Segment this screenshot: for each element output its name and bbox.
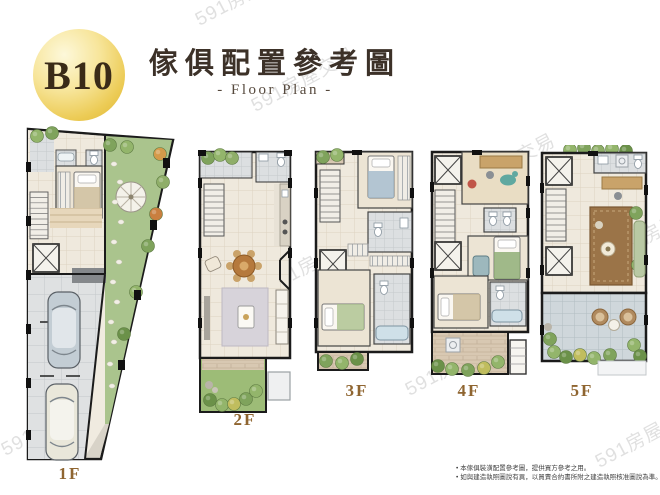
- floor-plan-1f: [10, 124, 175, 466]
- stairs-icon: [435, 190, 455, 242]
- floor-cushion-icon: [595, 221, 603, 229]
- unit-badge: B10: [33, 29, 125, 121]
- wardrobe-icon: [58, 172, 70, 212]
- floor-label-1f: 1F: [48, 464, 92, 484]
- page-title: 傢俱配置參考圖: [120, 40, 430, 82]
- bathtub-icon: [376, 326, 408, 340]
- stairs-icon: [546, 189, 566, 241]
- stairs-icon: [204, 184, 224, 236]
- closet: [348, 244, 368, 256]
- floor-label-5f: 5F: [560, 381, 604, 401]
- note-line: 本傢俱裝潢配置參考圖，提供買方參考之用。: [460, 465, 590, 472]
- bed-icon: [438, 294, 480, 320]
- tv-cabinet-icon: [204, 296, 210, 340]
- elevator-icon: [435, 242, 461, 270]
- wicker-chair-icon: [592, 309, 608, 325]
- page-subtitle: - Floor Plan -: [120, 82, 430, 99]
- toilet-icon: [374, 223, 382, 237]
- side-table-icon: [609, 320, 620, 331]
- sofa-icon: [276, 290, 288, 344]
- elevator-icon: [546, 157, 572, 185]
- wicker-chair-icon: [620, 309, 636, 325]
- annex-box: [268, 372, 290, 400]
- toilet-icon: [503, 212, 511, 226]
- floor-label-3f: 3F: [335, 381, 379, 401]
- bed-icon: [494, 237, 520, 279]
- sink-icon: [400, 218, 408, 228]
- toilet-icon: [380, 281, 388, 295]
- watermark: 591房屋交易: [590, 396, 660, 474]
- outdoor-stair: [510, 340, 526, 374]
- washer-icon: [446, 338, 460, 352]
- floor-label-4f: 4F: [447, 381, 491, 401]
- car-icon: [48, 292, 80, 368]
- kitchen-sink-icon: [282, 190, 288, 197]
- floor-plan-3f: [312, 148, 416, 378]
- patio-umbrella-icon: [116, 182, 146, 212]
- bullet-icon: •: [456, 474, 458, 481]
- chaise-icon: [634, 221, 645, 277]
- bed-icon: [74, 172, 100, 214]
- bathtub-icon: [492, 310, 522, 322]
- floor-label-2f: 2F: [223, 410, 267, 430]
- floor-plan-4f: [428, 148, 532, 380]
- elevator-icon: [33, 244, 59, 272]
- toilet-icon: [634, 155, 642, 169]
- terrace-extension: [598, 361, 646, 375]
- floor-plan-5f: [538, 145, 650, 380]
- toilet-icon: [277, 153, 285, 167]
- toilet-icon: [90, 151, 98, 165]
- floor-plan-2f: [196, 148, 296, 418]
- pouf-icon: [468, 180, 477, 189]
- note-line: 如與建造執照圖說有異，以買賣合約書所附之建造執照核准圖說為準。: [460, 474, 660, 481]
- stairs-icon: [30, 192, 48, 239]
- car-icon: [46, 384, 78, 460]
- desk-chair-icon: [614, 192, 622, 200]
- bed-icon: [322, 304, 364, 330]
- bathtub-icon: [58, 153, 74, 161]
- sink-icon: [598, 156, 608, 164]
- closet: [370, 256, 410, 266]
- toilet-icon: [496, 286, 504, 300]
- hall-wood-floor: [50, 208, 102, 228]
- watermark: 591房屋交易: [190, 0, 304, 31]
- washer-icon: [616, 155, 628, 167]
- stairs-icon: [320, 170, 340, 222]
- elevator-icon: [546, 247, 572, 275]
- desk-icon: [480, 156, 522, 168]
- daybed-icon: [473, 256, 489, 276]
- floor-plan-sheet: 591房屋交易 591房屋交易 591房屋交易 591房屋交易 591房屋交易 …: [0, 0, 660, 495]
- elevator-icon: [435, 156, 461, 184]
- disclaimer-notes: •本傢俱裝潢配置參考圖，提供買方參考之用。 •如與建造執照圖說有異，以買賣合約書…: [456, 464, 658, 482]
- bed-icon: [368, 156, 394, 198]
- sink-icon: [259, 154, 268, 161]
- desk-chair-icon: [486, 171, 494, 179]
- garden-brick-path: [202, 359, 264, 370]
- toilet-icon: [489, 212, 497, 226]
- desk-icon: [602, 177, 642, 189]
- entry-porch: [72, 268, 106, 283]
- bullet-icon: •: [456, 465, 458, 472]
- wardrobe-icon: [398, 156, 410, 200]
